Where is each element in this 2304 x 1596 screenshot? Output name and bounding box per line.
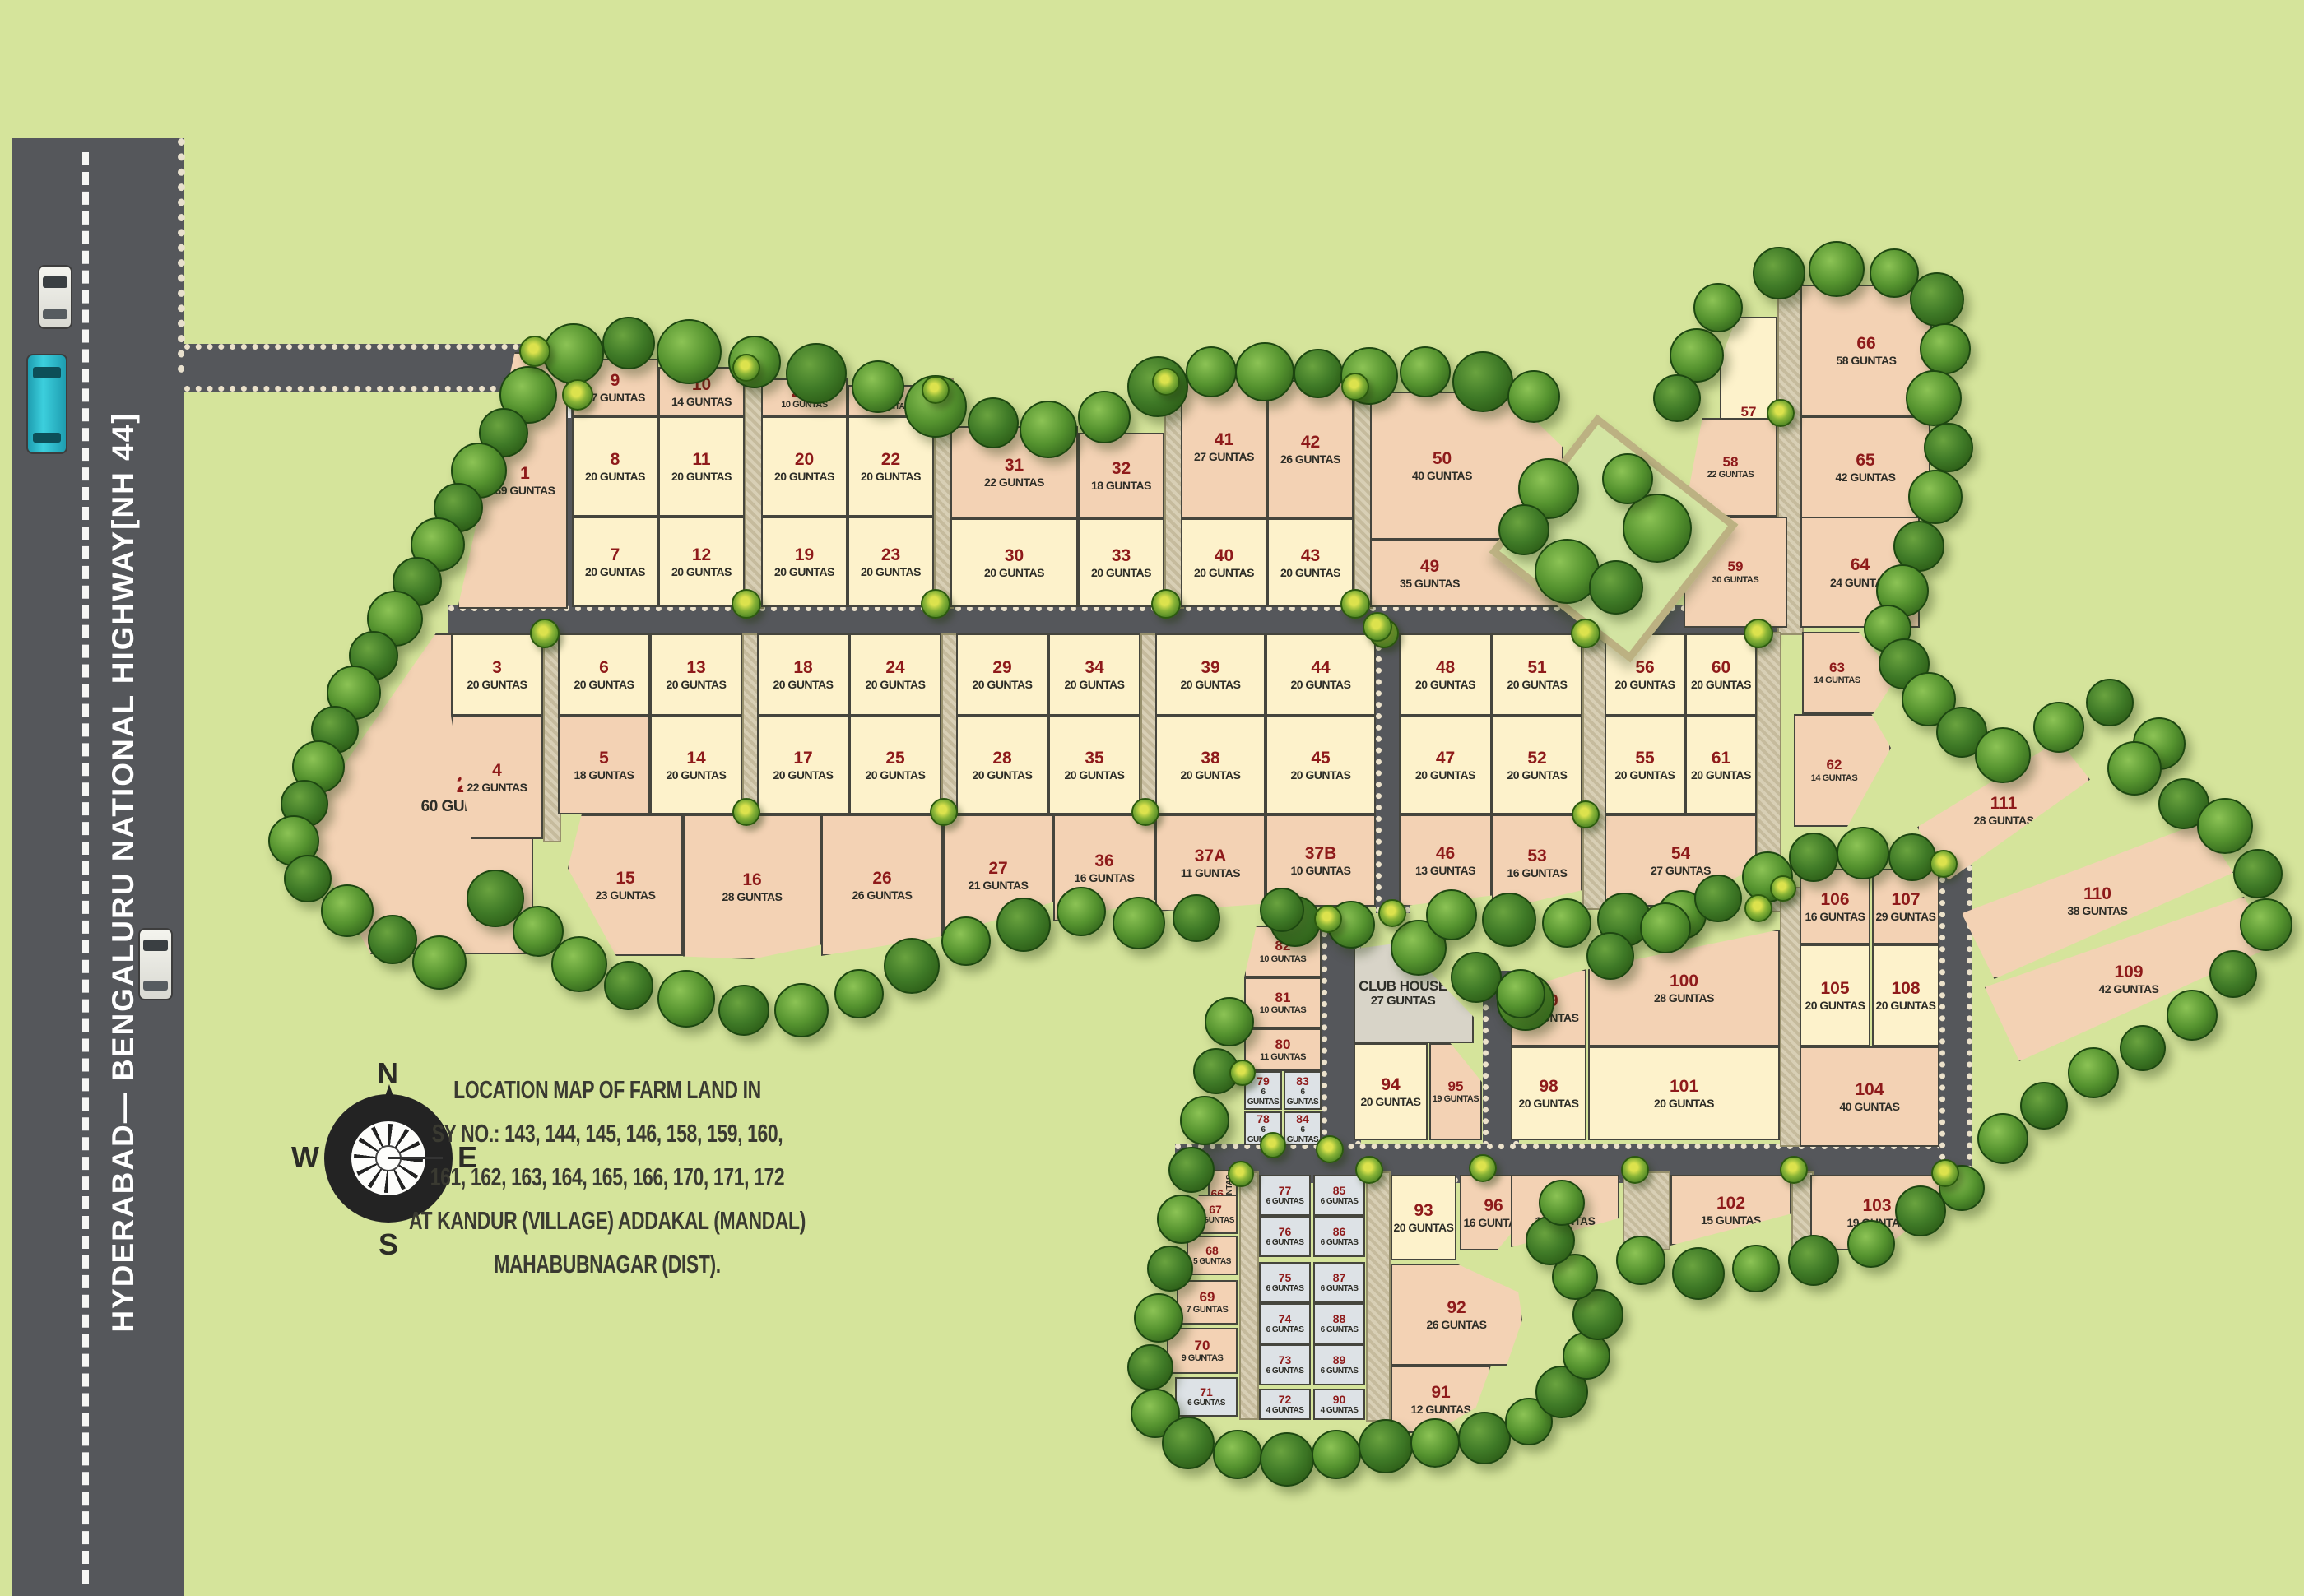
title-line: SY NO.: 143, 144, 145, 146, 158, 159, 16… [406,1111,808,1155]
tree-icon [1134,1293,1183,1343]
plot-13: 1320 GUNTAS [650,633,742,716]
tree-icon [1910,272,1964,327]
plot-90: 904 GUNTAS [1313,1389,1365,1420]
plot-5: 518 GUNTAS [558,716,650,814]
plot-number: 27 [988,859,1007,879]
tree-icon [1640,902,1691,953]
tree-icon [1168,1147,1215,1193]
tree-icon [834,969,884,1018]
plot-area-label: 20 GUNTAS [1360,1095,1420,1108]
tree-icon [718,985,769,1036]
plot-number: 59 [1728,559,1744,575]
tree-icon [1539,1180,1585,1226]
tree-icon [1498,504,1549,555]
plot-area-label: 30 GUNTAS [1712,575,1758,586]
plot-area-label: 11 GUNTAS [1260,1052,1306,1063]
palm-tree-icon [1131,798,1159,826]
plot-area-label: 6 GUNTAS [1246,1088,1280,1107]
plot-23: 2320 GUNTAS [848,517,934,607]
tree-icon [1451,952,1502,1003]
tree-icon [1359,1419,1413,1473]
plot-26: 2626 GUNTAS [821,814,943,956]
plot-area-label: 16 GUNTAS [1074,871,1134,884]
tree-icon [1482,893,1536,947]
plot-number: 58 [1723,454,1739,471]
plot-area-label: 22 GUNTAS [984,476,1044,489]
plot-number: 37A [1195,847,1227,866]
plot-number: 80 [1275,1037,1291,1053]
plot-number: 6 [599,658,609,678]
palm-tree-icon [1314,905,1342,933]
tree-icon [1180,1096,1229,1145]
plot-number: 9 [611,371,620,391]
plot-number: 104 [1855,1080,1884,1100]
plot-area-label: 13 GUNTAS [1415,864,1475,877]
plot-area-label: 11 GUNTAS [1181,866,1240,879]
plot-61: 6120 GUNTAS [1685,716,1757,814]
tree-icon [1173,894,1220,942]
tree-icon [1127,1344,1173,1390]
plot-101: 10120 GUNTAS [1588,1046,1780,1140]
palm-tree-icon [922,376,950,404]
plot-area-label: 20 GUNTAS [861,470,921,483]
plot-number: 72 [1279,1393,1292,1406]
plot-area-label: 20 GUNTAS [1415,678,1475,691]
plot-area-label: 6 GUNTAS [1321,1325,1359,1335]
tree-icon [1294,349,1343,398]
lane [1239,1171,1259,1420]
palm-tree-icon [1229,1060,1256,1086]
tree-icon [2209,950,2257,998]
plot-area-label: 20 GUNTAS [972,678,1032,691]
plot-area-label: 18 GUNTAS [1091,479,1151,492]
plot-number: 1 [520,464,530,484]
plot-number: 60 [1712,658,1730,678]
plot-number: 30 [1005,546,1024,566]
tree-icon [602,317,655,369]
plot-area-label: 23 GUNTAS [595,888,655,902]
plot-number: 85 [1333,1184,1346,1197]
plot-29: 2920 GUNTAS [956,633,1048,716]
tree-icon [1977,1113,2028,1164]
plot-area-label: 28 GUNTAS [722,890,782,903]
plot-33: 3320 GUNTAS [1078,518,1164,607]
car-icon [38,265,72,329]
plot-number: 91 [1431,1383,1450,1403]
tree-icon [1078,391,1131,443]
plot-73: 736 GUNTAS [1259,1344,1311,1385]
plot-number: 52 [1527,749,1546,768]
plot-number: 25 [885,749,904,768]
palm-tree-icon [732,354,760,382]
tree-icon [284,855,332,902]
tree-icon [368,915,417,964]
tree-icon [1753,247,1805,299]
plot-number: 103 [1862,1196,1891,1216]
tree-icon [1162,1417,1215,1469]
plot-89: 896 GUNTAS [1313,1344,1365,1385]
plot-area-label: 20 GUNTAS [1064,678,1124,691]
palm-tree-icon [1744,894,1772,922]
palm-tree-icon [1930,850,1958,878]
farm-land-location-map: HYDERABAD— BENGALURU NATIONAL HIGHWAY[NH… [0,0,2304,1596]
plot-area-label: 20 GUNTAS [467,678,527,691]
tree-icon [2107,741,2162,796]
palm-tree-icon [1931,1159,1959,1187]
plot-area-label: 12 GUNTAS [1410,1403,1470,1416]
palm-tree-icon [1152,368,1180,396]
plot-number: 32 [1112,459,1131,479]
plot-number: 55 [1635,749,1654,768]
plot-45: 4520 GUNTAS [1266,716,1376,814]
plot-number: 45 [1311,749,1330,768]
plot-number: 70 [1195,1338,1210,1354]
plot-number: 89 [1333,1353,1346,1366]
tree-icon [1920,323,1971,374]
tree-icon [852,360,904,413]
palm-tree-icon [1340,589,1370,619]
plot-area-label: 10 GUNTAS [1290,864,1350,877]
plot-number: 98 [1539,1077,1558,1097]
tree-icon [1895,1185,1946,1236]
plot-area-label: 29 GUNTAS [1875,910,1935,923]
plot-area-label: 6 GUNTAS [1266,1238,1304,1248]
tree-icon [1602,453,1653,504]
plot-area-label: 14 GUNTAS [1814,675,1860,686]
plot-number: 46 [1436,844,1455,864]
tree-icon [1458,1412,1511,1464]
plot-area-label: 20 GUNTAS [1415,768,1475,782]
plot-area-label: 10 GUNTAS [1260,1005,1306,1016]
tree-icon [1205,997,1254,1046]
plot-28: 2820 GUNTAS [956,716,1048,814]
tree-icon [1924,423,1973,472]
tree-icon [1623,494,1692,563]
plot-number: 33 [1112,546,1131,566]
plot-area-label: 20 GUNTAS [1290,678,1350,691]
plot-area-label: 20 GUNTAS [671,470,732,483]
plot-area-label: 28 GUNTAS [1973,814,2033,827]
plot-area-label: 6 GUNTAS [1321,1366,1359,1376]
tree-icon [774,983,829,1037]
plot-area-label: 4 GUNTAS [1321,1406,1359,1416]
plot-76: 766 GUNTAS [1259,1216,1311,1257]
plot-number: 93 [1414,1201,1433,1221]
plot-area-label: 20 GUNTAS [773,678,833,691]
plot-area-label: 14 GUNTAS [1811,773,1857,784]
plot-area-label: 20 GUNTAS [984,566,1044,579]
tree-icon [2167,990,2218,1041]
plot-area-label: 6 GUNTAS [1321,1197,1359,1207]
plot-18: 1820 GUNTAS [757,633,849,716]
plot-area-label: 20 GUNTAS [1614,768,1675,782]
plot-number: 106 [1820,890,1849,910]
lane [1366,1171,1391,1422]
plot-number: 19 [795,545,814,565]
plot-area-label: 14 GUNTAS [671,395,732,408]
tree-icon [412,935,467,990]
plot-83: 836 GUNTAS [1284,1071,1322,1110]
tree-icon [1157,1195,1206,1244]
plot-area-label: 4 GUNTAS [1266,1406,1304,1416]
plot-20: 2020 GUNTAS [761,416,848,517]
palm-tree-icon [519,336,550,367]
plot-number: 76 [1279,1225,1292,1238]
tree-icon [1452,351,1513,412]
plot-area-label: 10 GUNTAS [1260,954,1306,965]
plot-48: 4820 GUNTAS [1399,633,1492,716]
plot-11: 1120 GUNTAS [658,416,745,517]
plot-number: 111 [1990,794,2018,814]
plot-number: 5 [599,749,609,768]
plot-number: 37B [1305,844,1337,864]
plot-number: 42 [1301,433,1320,452]
plot-area-label: 28 GUNTAS [1654,991,1714,1004]
plot-16: 1628 GUNTAS [683,814,821,959]
plot-number: 77 [1279,1184,1292,1197]
tree-icon [2033,702,2084,753]
plot-number: 56 [1635,658,1654,678]
plot-area-label: 20 GUNTAS [1691,768,1751,782]
tree-icon [1975,727,2031,783]
title-line: LOCATION MAP OF FARM LAND IN [406,1068,808,1111]
plot-number: 47 [1436,749,1455,768]
plot-number: 109 [2114,963,2143,982]
plot-number: 13 [686,658,705,678]
plot-37a: 37A11 GUNTAS [1155,814,1266,912]
plot-number: 69 [1200,1289,1215,1306]
plot-area-label: 20 GUNTAS [671,565,732,578]
plot-51: 5120 GUNTAS [1492,633,1582,716]
plot-number: 79 [1257,1074,1270,1088]
plot-number: 15 [615,869,634,888]
plot-area-label: 20 GUNTAS [865,678,925,691]
plot-81: 8110 GUNTAS [1244,977,1322,1028]
tree-icon [657,319,722,384]
plot-area-label: 22 GUNTAS [467,781,527,794]
tree-icon [2240,898,2292,951]
plot-25: 2520 GUNTAS [849,716,941,814]
plot-42: 4226 GUNTAS [1267,380,1354,518]
title-line: AT KANDUR (VILLAGE) ADDAKAL (MANDAL) [406,1199,808,1242]
plot-93: 9320 GUNTAS [1391,1175,1456,1260]
tree-icon [1837,827,1889,879]
plot-area-label: 26 GUNTAS [1426,1318,1486,1331]
plot-area-label: 42 GUNTAS [2098,982,2158,995]
plot-number: 17 [793,749,812,768]
plot-number: 90 [1333,1393,1346,1406]
plot-number: 31 [1005,456,1024,476]
plot-72: 724 GUNTAS [1259,1389,1311,1420]
plot-area-label: 20 GUNTAS [1654,1097,1714,1110]
highway-center-line [82,152,89,1584]
plot-area-label: 42 GUNTAS [1835,471,1895,484]
tree-icon [1789,833,1838,882]
plot-area-label: 6 GUNTAS [1187,1399,1225,1408]
palm-tree-icon [562,379,593,411]
plot-39: 3920 GUNTAS [1155,633,1266,716]
plot-69: 697 GUNTAS [1177,1280,1238,1325]
plot-area-label: 20 GUNTAS [666,768,726,782]
plot-number: 110 [2083,884,2111,904]
compass-s-label: S [379,1227,398,1262]
palm-tree-icon [1260,1132,1286,1158]
plot-number: 12 [692,545,711,565]
highway-label: HYDERABAD— BENGALURU NATIONAL HIGHWAY[NH… [106,337,141,1407]
plot-86: 866 GUNTAS [1313,1216,1365,1257]
plot-area-label: 20 GUNTAS [773,768,833,782]
plot-area-label: 6 GUNTAS [1266,1325,1304,1335]
plot-number: 43 [1301,546,1320,566]
palm-tree-icon [732,589,761,619]
plot-number: 81 [1275,990,1291,1006]
plot-area-label: 5 GUNTAS [1193,1257,1231,1267]
tree-icon [543,323,604,384]
plot-number: 35 [1085,749,1103,768]
plot-number: 51 [1527,658,1546,678]
plot-number: 38 [1201,749,1219,768]
plot-number: 26 [872,869,891,888]
tree-icon [551,936,607,992]
plot-area-label: 6 GUNTAS [1285,1088,1320,1107]
tree-icon [1653,374,1701,422]
plot-area-label: 20 GUNTAS [1280,566,1340,579]
plot-19: 1920 GUNTAS [761,517,848,607]
plot-area-label: 20 GUNTAS [1064,768,1124,782]
plot-area-label: 26 GUNTAS [852,888,912,902]
tree-icon [1426,889,1477,940]
plot-area-label: 20 GUNTAS [1691,678,1751,691]
plot-area-label: 15 GUNTAS [1701,1213,1761,1227]
tree-icon [1496,969,1545,1018]
tree-icon [1693,283,1743,332]
plot-94: 9420 GUNTAS [1354,1043,1428,1140]
plot-77: 776 GUNTAS [1259,1175,1311,1216]
plot-number: 16 [742,870,761,890]
plot-number: 39 [1201,658,1219,678]
plot-number: 94 [1381,1075,1400,1095]
tree-icon [1410,1418,1460,1468]
palm-tree-icon [1767,399,1795,427]
tree-icon [1312,1430,1361,1479]
plot-number: 53 [1527,847,1546,866]
plot-area-label: 20 GUNTAS [1194,566,1254,579]
tree-icon [1672,1247,1725,1300]
tree-icon [1186,346,1237,397]
tree-icon [2020,1082,2068,1130]
tree-icon [2197,798,2253,854]
plot-47: 4720 GUNTAS [1399,716,1492,814]
highway-edge-dots [178,138,185,373]
tree-icon [604,961,653,1010]
plot-35: 3520 GUNTAS [1048,716,1140,814]
plot-area-label: 27 GUNTAS [1651,864,1711,877]
plot-12: 1220 GUNTAS [658,517,745,607]
plot-area-label: 16 GUNTAS [1805,910,1865,923]
tree-icon [1400,346,1451,397]
title-block: LOCATION MAP OF FARM LAND IN SY NO.: 143… [406,1068,808,1286]
title-line: MAHABUBNAGAR (DIST). [406,1242,808,1286]
plot-number: 100 [1670,972,1698,991]
plot-area-label: 6 GUNTAS [1266,1284,1304,1294]
tree-icon [1694,875,1742,922]
tree-icon [884,938,940,994]
plot-area-label: 19 GUNTAS [1433,1094,1479,1105]
plot-area-label: 20 GUNTAS [1875,999,1935,1012]
plot-number: 68 [1205,1244,1219,1257]
plot-number: 101 [1670,1077,1698,1097]
plot-62: 6214 GUNTAS [1794,714,1891,827]
plot-area-label: 20 GUNTAS [1393,1221,1453,1234]
plot-number: 107 [1891,890,1920,910]
plot-area-label: 20 GUNTAS [774,470,834,483]
tree-icon [1788,1235,1839,1286]
plot-area-label: 20 GUNTAS [1180,678,1240,691]
plot-area-label: 6 GUNTAS [1321,1238,1359,1248]
plot-52: 5220 GUNTAS [1492,716,1582,814]
plot-area-label: 40 GUNTAS [1839,1100,1899,1113]
entry-road [184,344,553,392]
plot-area-label: 20 GUNTAS [1614,678,1675,691]
plot-32: 3218 GUNTAS [1078,433,1164,518]
plot-108: 10820 GUNTAS [1872,944,1939,1046]
palm-tree-icon [1571,619,1600,648]
plot-area-label: 9 GUNTAS [1182,1353,1224,1364]
plot-number: 84 [1296,1112,1309,1125]
tree-icon [1507,370,1560,423]
plot-number: 92 [1447,1298,1466,1318]
plot-number: 63 [1829,660,1845,676]
palm-tree-icon [1378,899,1406,927]
plot-area-label: 20 GUNTAS [1507,768,1567,782]
plot-area-label: 18 GUNTAS [574,768,634,782]
plot-17: 1720 GUNTAS [757,716,849,814]
plot-area-label: 6 GUNTAS [1321,1284,1359,1294]
plot-area-label: 20 GUNTAS [774,565,834,578]
palm-tree-icon [1341,373,1369,401]
plot-area-label: 20 GUNTAS [1091,566,1151,579]
tree-icon [1020,401,1077,458]
plot-number: 54 [1671,844,1690,864]
tree-icon [1147,1246,1193,1292]
plot-area-label: 58 GUNTAS [1836,354,1896,367]
tree-icon [1589,560,1643,615]
plot-area-label: 20 GUNTAS [574,678,634,691]
plot-number: 20 [795,450,814,470]
plot-number: 41 [1215,430,1233,450]
tree-icon [968,397,1019,448]
tree-icon [2120,1025,2166,1071]
plot-number: 102 [1716,1194,1745,1213]
plot-24: 2420 GUNTAS [849,633,941,716]
tree-icon [1586,932,1634,980]
club-house-area: 27 GUNTAS [1371,994,1436,1008]
title-line: 161, 162, 163, 164, 165, 166, 170, 171, … [406,1155,808,1199]
plot-area-label: 20 GUNTAS [1507,678,1567,691]
plot-74: 746 GUNTAS [1259,1303,1311,1344]
plot-area-label: 20 GUNTAS [865,768,925,782]
plot-number: 23 [881,545,900,565]
plot-number: 83 [1296,1074,1309,1088]
plot-number: 50 [1433,449,1452,469]
palm-tree-icon [1151,589,1181,619]
plot-area-label: 39 GUNTAS [495,484,555,497]
plot-area-label: 35 GUNTAS [1400,577,1460,590]
plot-71: 716 GUNTAS [1175,1377,1238,1417]
plot-number: 105 [1820,979,1849,999]
plot-8: 820 GUNTAS [572,416,658,517]
plot-area-label: 40 GUNTAS [1412,469,1472,482]
